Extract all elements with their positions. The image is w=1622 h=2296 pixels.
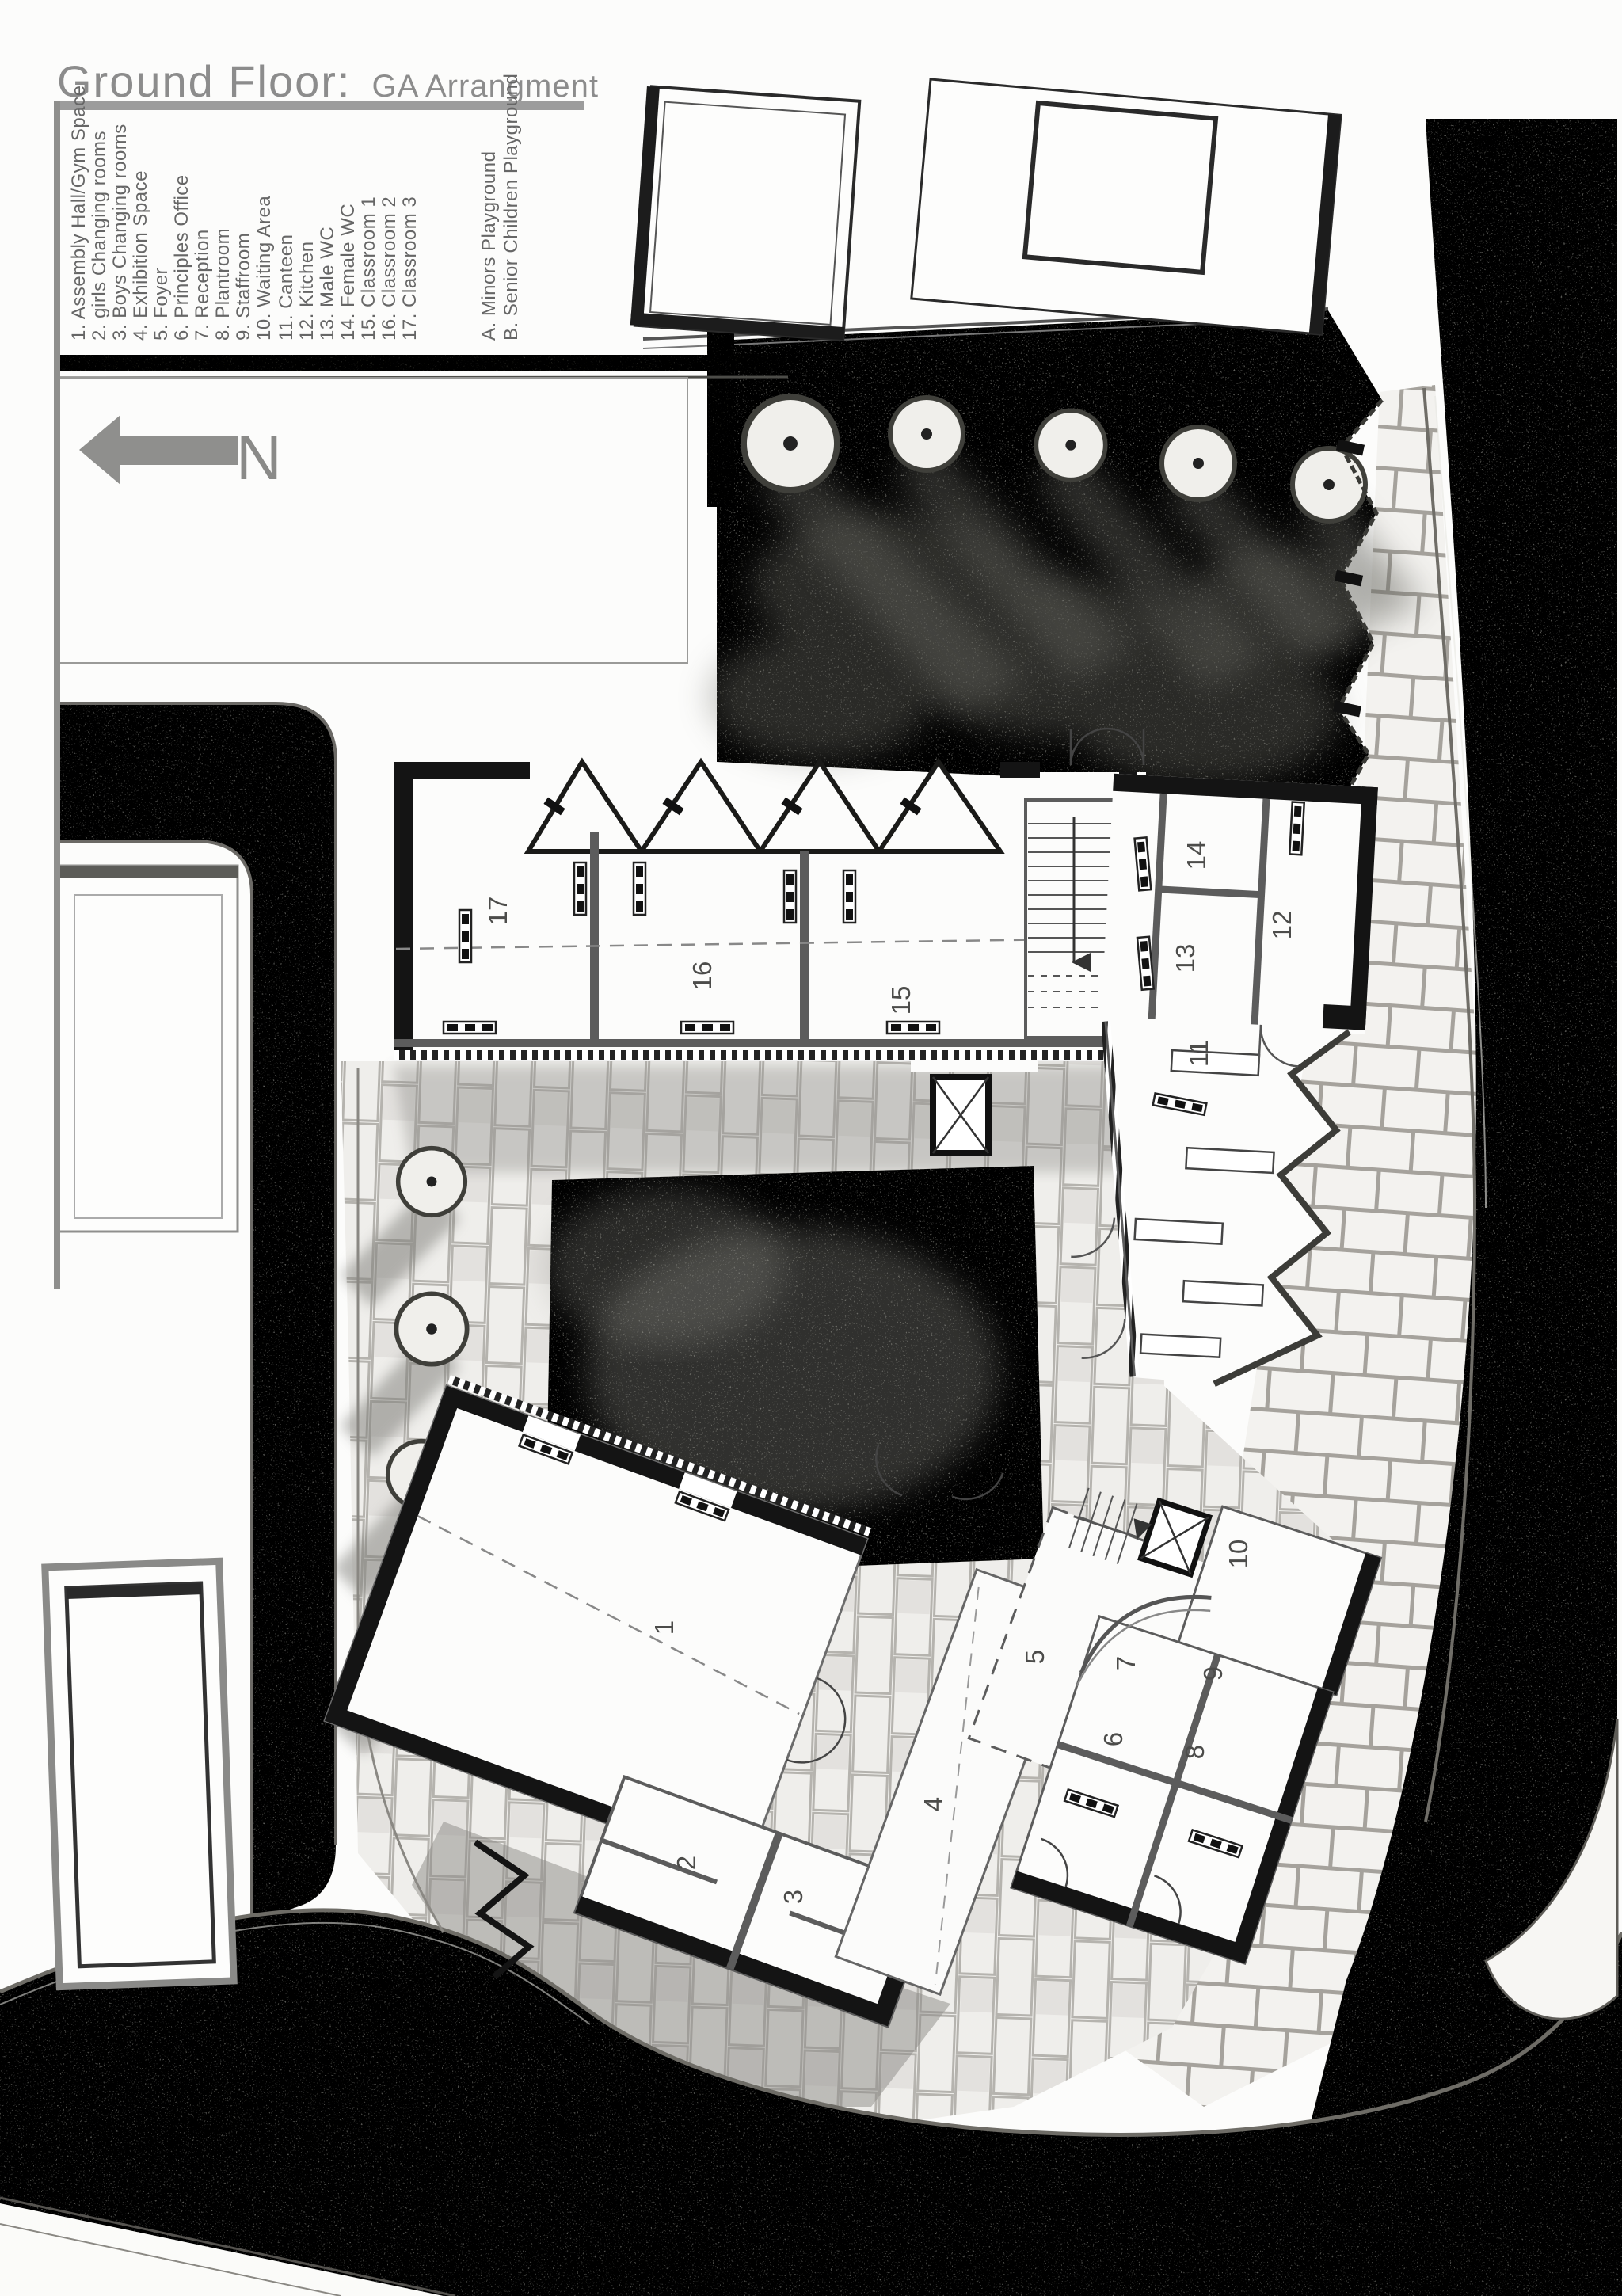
tree-icon (398, 1148, 466, 1216)
neighbour-building-top-a (630, 86, 860, 340)
site-wall-band (59, 355, 786, 371)
tree-icon (890, 398, 963, 470)
room-label-6: 6 (1098, 1732, 1128, 1746)
wall-west (394, 762, 413, 1055)
sheet-left-border (54, 101, 60, 1289)
room-label-1: 1 (649, 1620, 679, 1635)
room-label-15: 15 (886, 986, 916, 1015)
partition-17-16 (590, 832, 599, 1039)
room-label-3: 3 (779, 1890, 808, 1904)
page-subtitle: GA Arrangment (372, 69, 599, 104)
radiator (574, 862, 586, 915)
radiator (459, 910, 471, 962)
legend-item-6: 6. Principles Office (171, 174, 193, 341)
legend-item-8: 8. Plantroom (212, 228, 234, 341)
radiator (634, 862, 645, 915)
hedge-strip (707, 317, 734, 507)
wall-south (394, 1039, 1146, 1047)
legend-item-2: 2. girls Changing rooms (89, 131, 111, 341)
legend-item-5: 5. Foyer (150, 268, 173, 341)
room-label-2: 2 (672, 1856, 701, 1870)
lift-north (933, 1077, 988, 1153)
room-label-17: 17 (483, 897, 512, 926)
room-label-16: 16 (687, 961, 717, 991)
room-label-12: 12 (1267, 911, 1296, 940)
room-label-5: 5 (1020, 1650, 1049, 1664)
tree-icon (1162, 427, 1235, 500)
north-label: N (236, 422, 282, 493)
legend-item-16: 16. Classroom 2 (379, 196, 401, 341)
north-arrow-block: N (59, 355, 788, 663)
room-label-11: 11 (1184, 1040, 1213, 1067)
neighbour-building-left-upper (57, 866, 238, 1232)
room-label-9: 9 (1198, 1666, 1228, 1681)
radiator (1289, 802, 1304, 855)
legend-item-playground-b: B. Senior Children Playground (501, 74, 523, 341)
ground-floor-plan-drawing: N (0, 0, 1622, 2296)
sawtooth-glazing-north (528, 762, 1000, 851)
tree-icon (744, 397, 837, 490)
tree-icon (1036, 410, 1105, 479)
legend-item-3: 3. Boys Changing rooms (109, 124, 131, 341)
legend-item-4: 4. Exhibition Space (130, 170, 152, 341)
legend-item-11: 11. Canteen (276, 234, 298, 341)
legend-item-13: 13. Male WC (317, 227, 339, 341)
wall-north (394, 762, 530, 779)
legend-item-15: 15. Classroom 1 (358, 196, 380, 341)
room-label-7: 7 (1111, 1656, 1140, 1670)
legend-item-17: 17. Classroom 3 (399, 196, 421, 341)
legend-item-1: 1. Assembly Hall/Gym Space (68, 86, 90, 341)
legend-item-9: 9. Staffroom (233, 233, 255, 341)
playground-b-area (643, 309, 1426, 794)
legend-item-7: 7. Reception (192, 229, 214, 341)
legend-item-playground-a: A. Minors Playground (478, 151, 501, 341)
room-label-8: 8 (1180, 1745, 1209, 1759)
wall-south-hatch (394, 1050, 1146, 1060)
legend-item-12: 12. Kitchen (296, 241, 318, 341)
neighbour-building-top-b (912, 79, 1341, 334)
legend-item-14: 14. Female WC (337, 204, 360, 341)
page-title: Ground Floor: (57, 56, 352, 106)
legend-item-10: 10. Waiting Area (253, 196, 276, 341)
room-label-13: 13 (1171, 944, 1200, 973)
neighbour-building-left-lower (45, 1561, 234, 1986)
radiator (887, 1022, 939, 1034)
tree-icon (396, 1293, 466, 1364)
tree-icon (1293, 448, 1365, 521)
radiator (784, 870, 796, 923)
partition-16-15 (800, 851, 809, 1039)
room-label-14: 14 (1182, 841, 1211, 870)
radiator (681, 1022, 733, 1034)
radiator (444, 1022, 496, 1034)
floor-plan-sheet: N (0, 0, 1622, 2296)
north-box (59, 378, 687, 663)
room-label-10: 10 (1224, 1540, 1253, 1569)
room-label-4: 4 (919, 1797, 948, 1811)
radiator (843, 870, 855, 923)
